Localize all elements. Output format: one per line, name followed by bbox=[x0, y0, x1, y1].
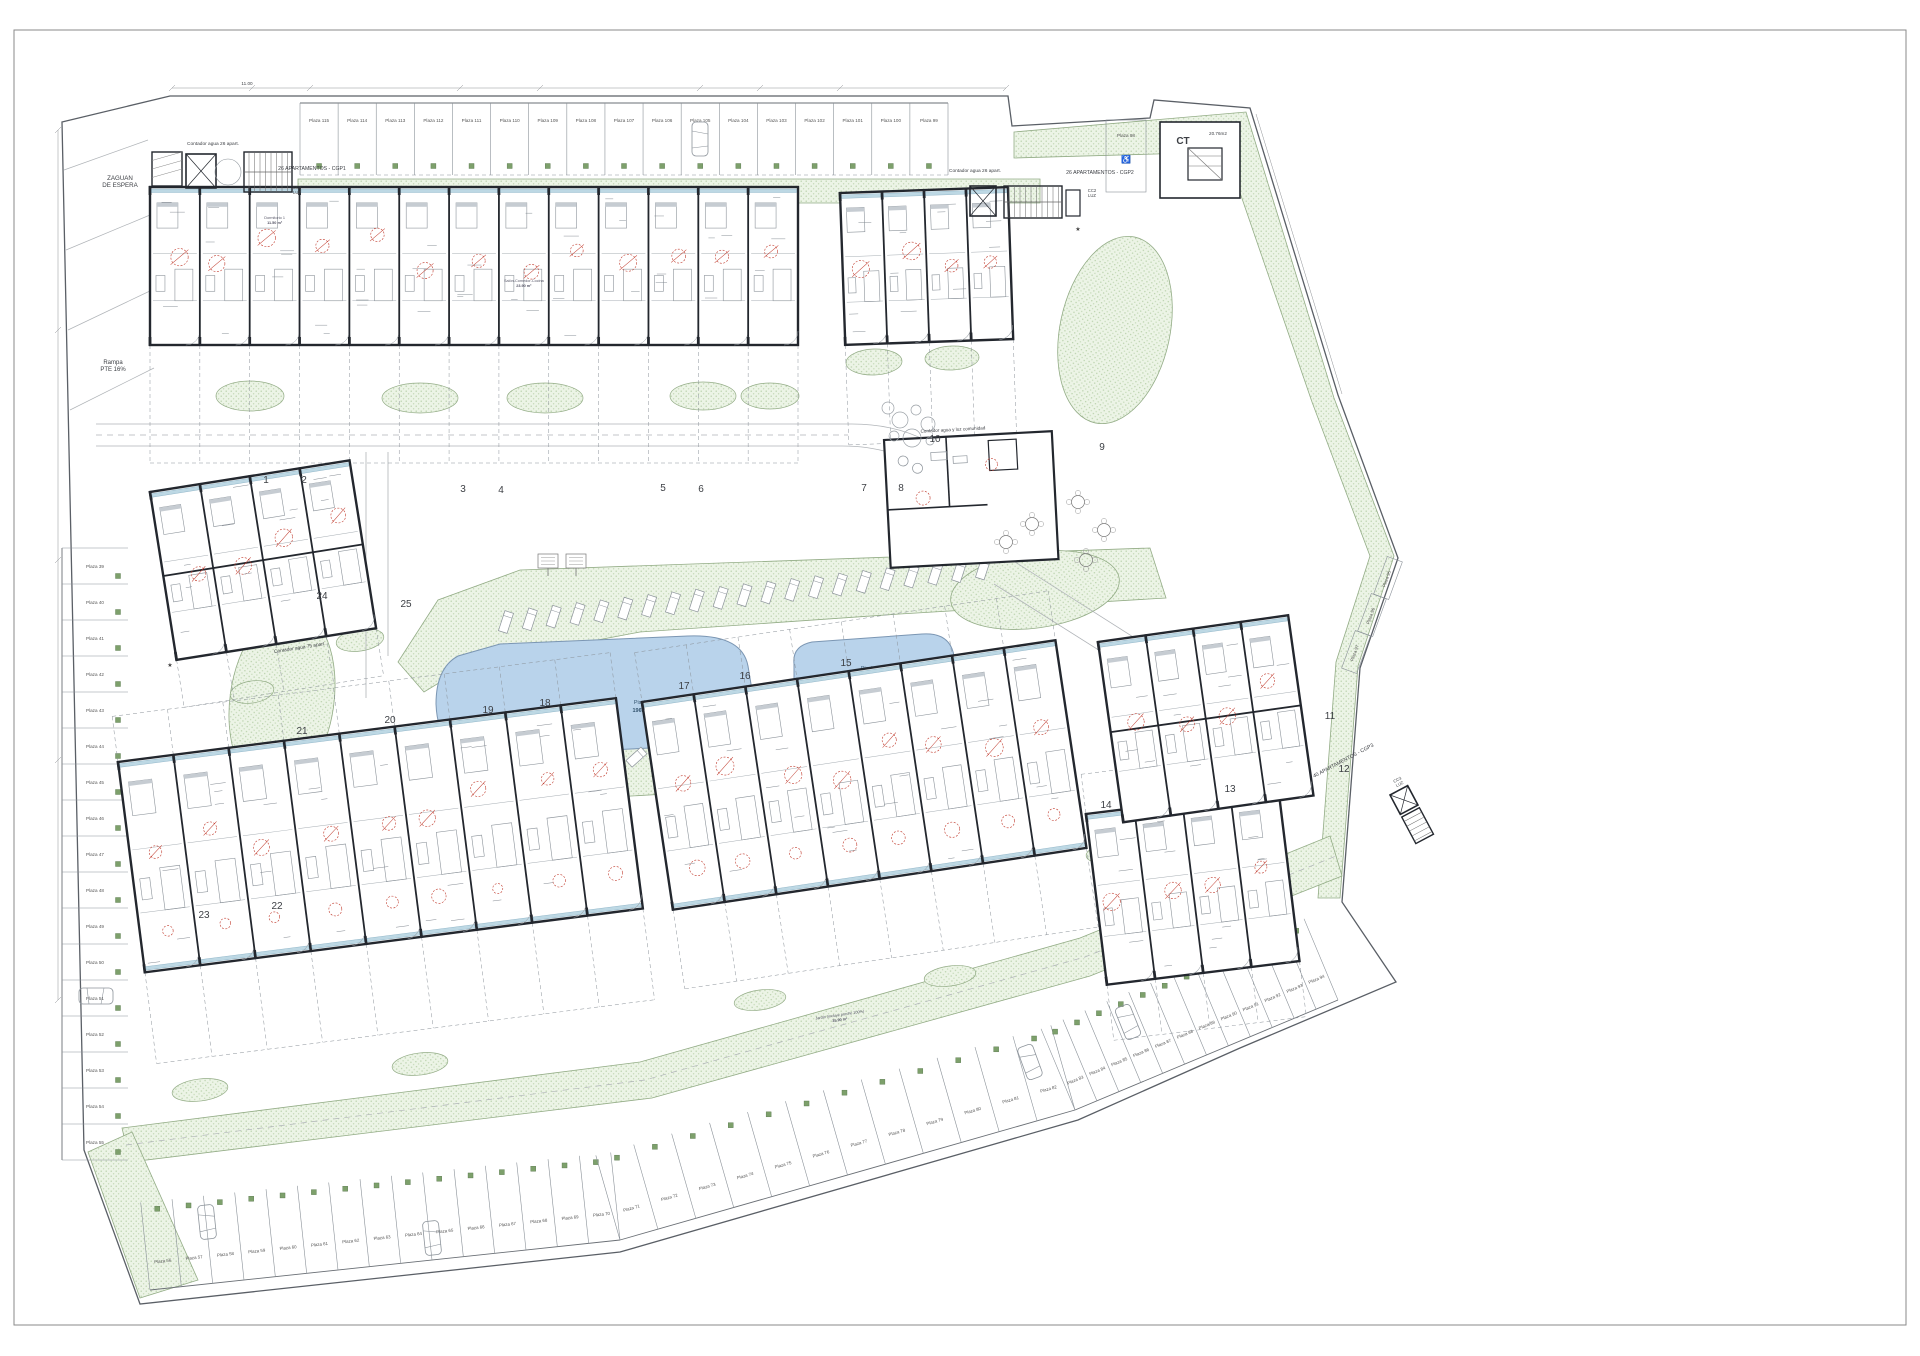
block-number: 1 bbox=[263, 475, 269, 486]
label-contador-cgp2: Contador agua 26 apart. bbox=[949, 168, 1001, 174]
parking-stall-label: Plaza 107 bbox=[614, 118, 635, 123]
block-number: 18 bbox=[539, 698, 551, 709]
drawing-sheet: Piscina 1196.30 m²Piscina 236.90 m²Plaza… bbox=[0, 0, 1920, 1356]
block-number: 16 bbox=[739, 671, 751, 682]
block-number: 10 bbox=[929, 434, 941, 445]
parking-stall-label: Plaza 50 bbox=[86, 960, 104, 965]
planter bbox=[888, 164, 893, 169]
block-number: 8 bbox=[898, 483, 904, 494]
parking-stall-label: Plaza 98 bbox=[1117, 133, 1135, 138]
planter bbox=[116, 1006, 121, 1011]
block-number: 2 bbox=[301, 475, 307, 486]
planter bbox=[766, 1112, 771, 1117]
block-number: 24 bbox=[316, 591, 328, 602]
label-rampa: RampaPTE 16% bbox=[100, 360, 126, 373]
label-cc2: CC2LUZ bbox=[1088, 188, 1097, 198]
parking-stall-label: Plaza 110 bbox=[500, 118, 521, 123]
room-label: Dormitorio 1 bbox=[264, 216, 285, 220]
planter bbox=[280, 1193, 285, 1198]
planter bbox=[116, 826, 121, 831]
planter bbox=[690, 1133, 695, 1138]
planter bbox=[155, 1206, 160, 1211]
label-ct-area: 20.76m2 bbox=[1209, 131, 1227, 136]
planter bbox=[880, 1079, 885, 1084]
label-cgp2: 26 APARTAMENTOS - CGP2 bbox=[1066, 170, 1134, 176]
label-cc3: CC3LUZ bbox=[1392, 775, 1405, 788]
parking-stall-label: Plaza 113 bbox=[385, 118, 406, 123]
planter bbox=[545, 164, 550, 169]
block-number: 17 bbox=[678, 681, 690, 692]
planter bbox=[531, 1166, 536, 1171]
block-number: 5 bbox=[660, 483, 666, 494]
block-number: 13 bbox=[1224, 784, 1236, 795]
block-number: 6 bbox=[698, 484, 704, 495]
parking-stall-label: Plaza 43 bbox=[86, 708, 104, 713]
planter bbox=[437, 1176, 442, 1181]
planter bbox=[116, 898, 121, 903]
planter bbox=[116, 862, 121, 867]
block-number: 3 bbox=[460, 484, 466, 495]
planter bbox=[736, 164, 741, 169]
planter bbox=[850, 164, 855, 169]
parking-stall-label: Plaza 103 bbox=[766, 118, 787, 123]
planter bbox=[116, 790, 121, 795]
parking-stall-label: Plaza 53 bbox=[86, 1068, 104, 1073]
planter bbox=[728, 1123, 733, 1128]
block-number: 11 bbox=[1325, 711, 1336, 722]
parking-stall-label: Plaza 46 bbox=[86, 816, 104, 821]
planter bbox=[1075, 1020, 1080, 1025]
planter bbox=[116, 1042, 121, 1047]
planter bbox=[583, 164, 588, 169]
parking-stall-label: Plaza 40 bbox=[86, 600, 104, 605]
planter bbox=[186, 1203, 191, 1208]
planter bbox=[1096, 1011, 1101, 1016]
planter bbox=[1032, 1036, 1037, 1041]
planter bbox=[116, 682, 121, 687]
planter bbox=[116, 1114, 121, 1119]
parking-stall-label: Plaza 115 bbox=[309, 118, 330, 123]
planter bbox=[116, 574, 121, 579]
label-contador-cgp1: Contador agua 26 apart. bbox=[187, 141, 239, 147]
planter bbox=[1053, 1029, 1058, 1034]
label-dim-top: 11.00 bbox=[241, 81, 253, 86]
block-number: 15 bbox=[840, 658, 852, 669]
planter bbox=[311, 1190, 316, 1195]
parking-stall-label: Plaza 41 bbox=[86, 636, 104, 641]
parking-stall-label: Plaza 101 bbox=[842, 118, 863, 123]
planter bbox=[499, 1170, 504, 1175]
parking-stall-label: Plaza 114 bbox=[347, 118, 368, 123]
planter bbox=[774, 164, 779, 169]
planter bbox=[812, 164, 817, 169]
building-east bbox=[1096, 614, 1313, 823]
parking-stall-label: Plaza 39 bbox=[86, 564, 104, 569]
planter bbox=[562, 1163, 567, 1168]
planter bbox=[956, 1058, 961, 1063]
planter bbox=[217, 1200, 222, 1205]
block-number: 14 bbox=[1100, 800, 1112, 811]
planter bbox=[116, 934, 121, 939]
block-number: 25 bbox=[400, 599, 412, 610]
planter bbox=[698, 164, 703, 169]
planter bbox=[622, 164, 627, 169]
label-ct: CT bbox=[1176, 136, 1189, 147]
planter bbox=[994, 1047, 999, 1052]
planter bbox=[918, 1068, 923, 1073]
parking-stall-label: Plaza 109 bbox=[538, 118, 559, 123]
planter bbox=[652, 1144, 657, 1149]
block-number: 23 bbox=[198, 910, 210, 921]
site-plan: Piscina 1196.30 m²Piscina 236.90 m²Plaza… bbox=[0, 0, 1920, 1356]
parking-stall-label: Plaza 45 bbox=[86, 780, 104, 785]
label-cgp1: 26 APARTAMENTOS - CGP1 bbox=[278, 166, 346, 172]
label-cc1: CC1LUZ bbox=[293, 185, 302, 195]
parking-stall-label: Plaza 108 bbox=[576, 118, 597, 123]
planter bbox=[116, 610, 121, 615]
parking-stall-label: Plaza 55 bbox=[86, 1140, 104, 1145]
stair-core-3 bbox=[1390, 786, 1433, 844]
block-number: 4 bbox=[498, 485, 504, 496]
planter bbox=[926, 164, 931, 169]
planter bbox=[116, 646, 121, 651]
planter bbox=[405, 1180, 410, 1185]
planter bbox=[1162, 983, 1167, 988]
parking-stall-label: Plaza 99 bbox=[920, 118, 938, 123]
parking-stall-label: Plaza 44 bbox=[86, 744, 104, 749]
planter bbox=[249, 1196, 254, 1201]
entrance-marker: ★ bbox=[167, 662, 172, 669]
planter bbox=[804, 1101, 809, 1106]
planter bbox=[468, 1173, 473, 1178]
room-area: 11.50 m² bbox=[267, 221, 283, 225]
parking-stall-label: Plaza 112 bbox=[423, 118, 444, 123]
parking-stall-label: Plaza 47 bbox=[86, 852, 104, 857]
wheelchair-icon: ♿ bbox=[1121, 154, 1131, 164]
parking-stall-label: Plaza 52 bbox=[86, 1032, 104, 1037]
parking-stall-label: Plaza 42 bbox=[86, 672, 104, 677]
block-number: 21 bbox=[296, 726, 308, 737]
planter bbox=[355, 164, 360, 169]
room-label: Salón-Comedor-Cocina bbox=[504, 279, 545, 283]
communal-building bbox=[884, 431, 1058, 568]
entrance-marker: ★ bbox=[1075, 226, 1080, 233]
transformer-ct bbox=[1160, 122, 1240, 198]
room-area: 23.90 m² bbox=[516, 284, 532, 288]
planter bbox=[116, 754, 121, 759]
planter bbox=[660, 164, 665, 169]
planter bbox=[116, 718, 121, 723]
planter bbox=[374, 1183, 379, 1188]
parking-stall-label: Plaza 54 bbox=[86, 1104, 104, 1109]
planter bbox=[507, 164, 512, 169]
planter bbox=[116, 970, 121, 975]
planter bbox=[343, 1186, 348, 1191]
parking-stall-label: Plaza 106 bbox=[652, 118, 673, 123]
planter bbox=[116, 1078, 121, 1083]
planter bbox=[116, 1150, 121, 1155]
parking-stall-label: Plaza 102 bbox=[804, 118, 825, 123]
block-number: 9 bbox=[1099, 442, 1105, 453]
block-number: 22 bbox=[271, 901, 283, 912]
planter bbox=[431, 164, 436, 169]
parking-stall-label: Plaza 100 bbox=[881, 118, 902, 123]
block-number: 7 bbox=[861, 483, 867, 494]
planter bbox=[614, 1155, 619, 1160]
planter bbox=[1140, 992, 1145, 997]
planter bbox=[842, 1090, 847, 1095]
block-number: 20 bbox=[384, 715, 396, 726]
planter bbox=[469, 164, 474, 169]
parking-stall-label: Plaza 48 bbox=[86, 888, 104, 893]
parking-stall-label: Plaza 104 bbox=[728, 118, 749, 123]
block-number: 19 bbox=[482, 705, 494, 716]
parking-stall-label: Plaza 111 bbox=[462, 118, 482, 123]
planter bbox=[393, 164, 398, 169]
parking-stall-label: Plaza 49 bbox=[86, 924, 104, 929]
